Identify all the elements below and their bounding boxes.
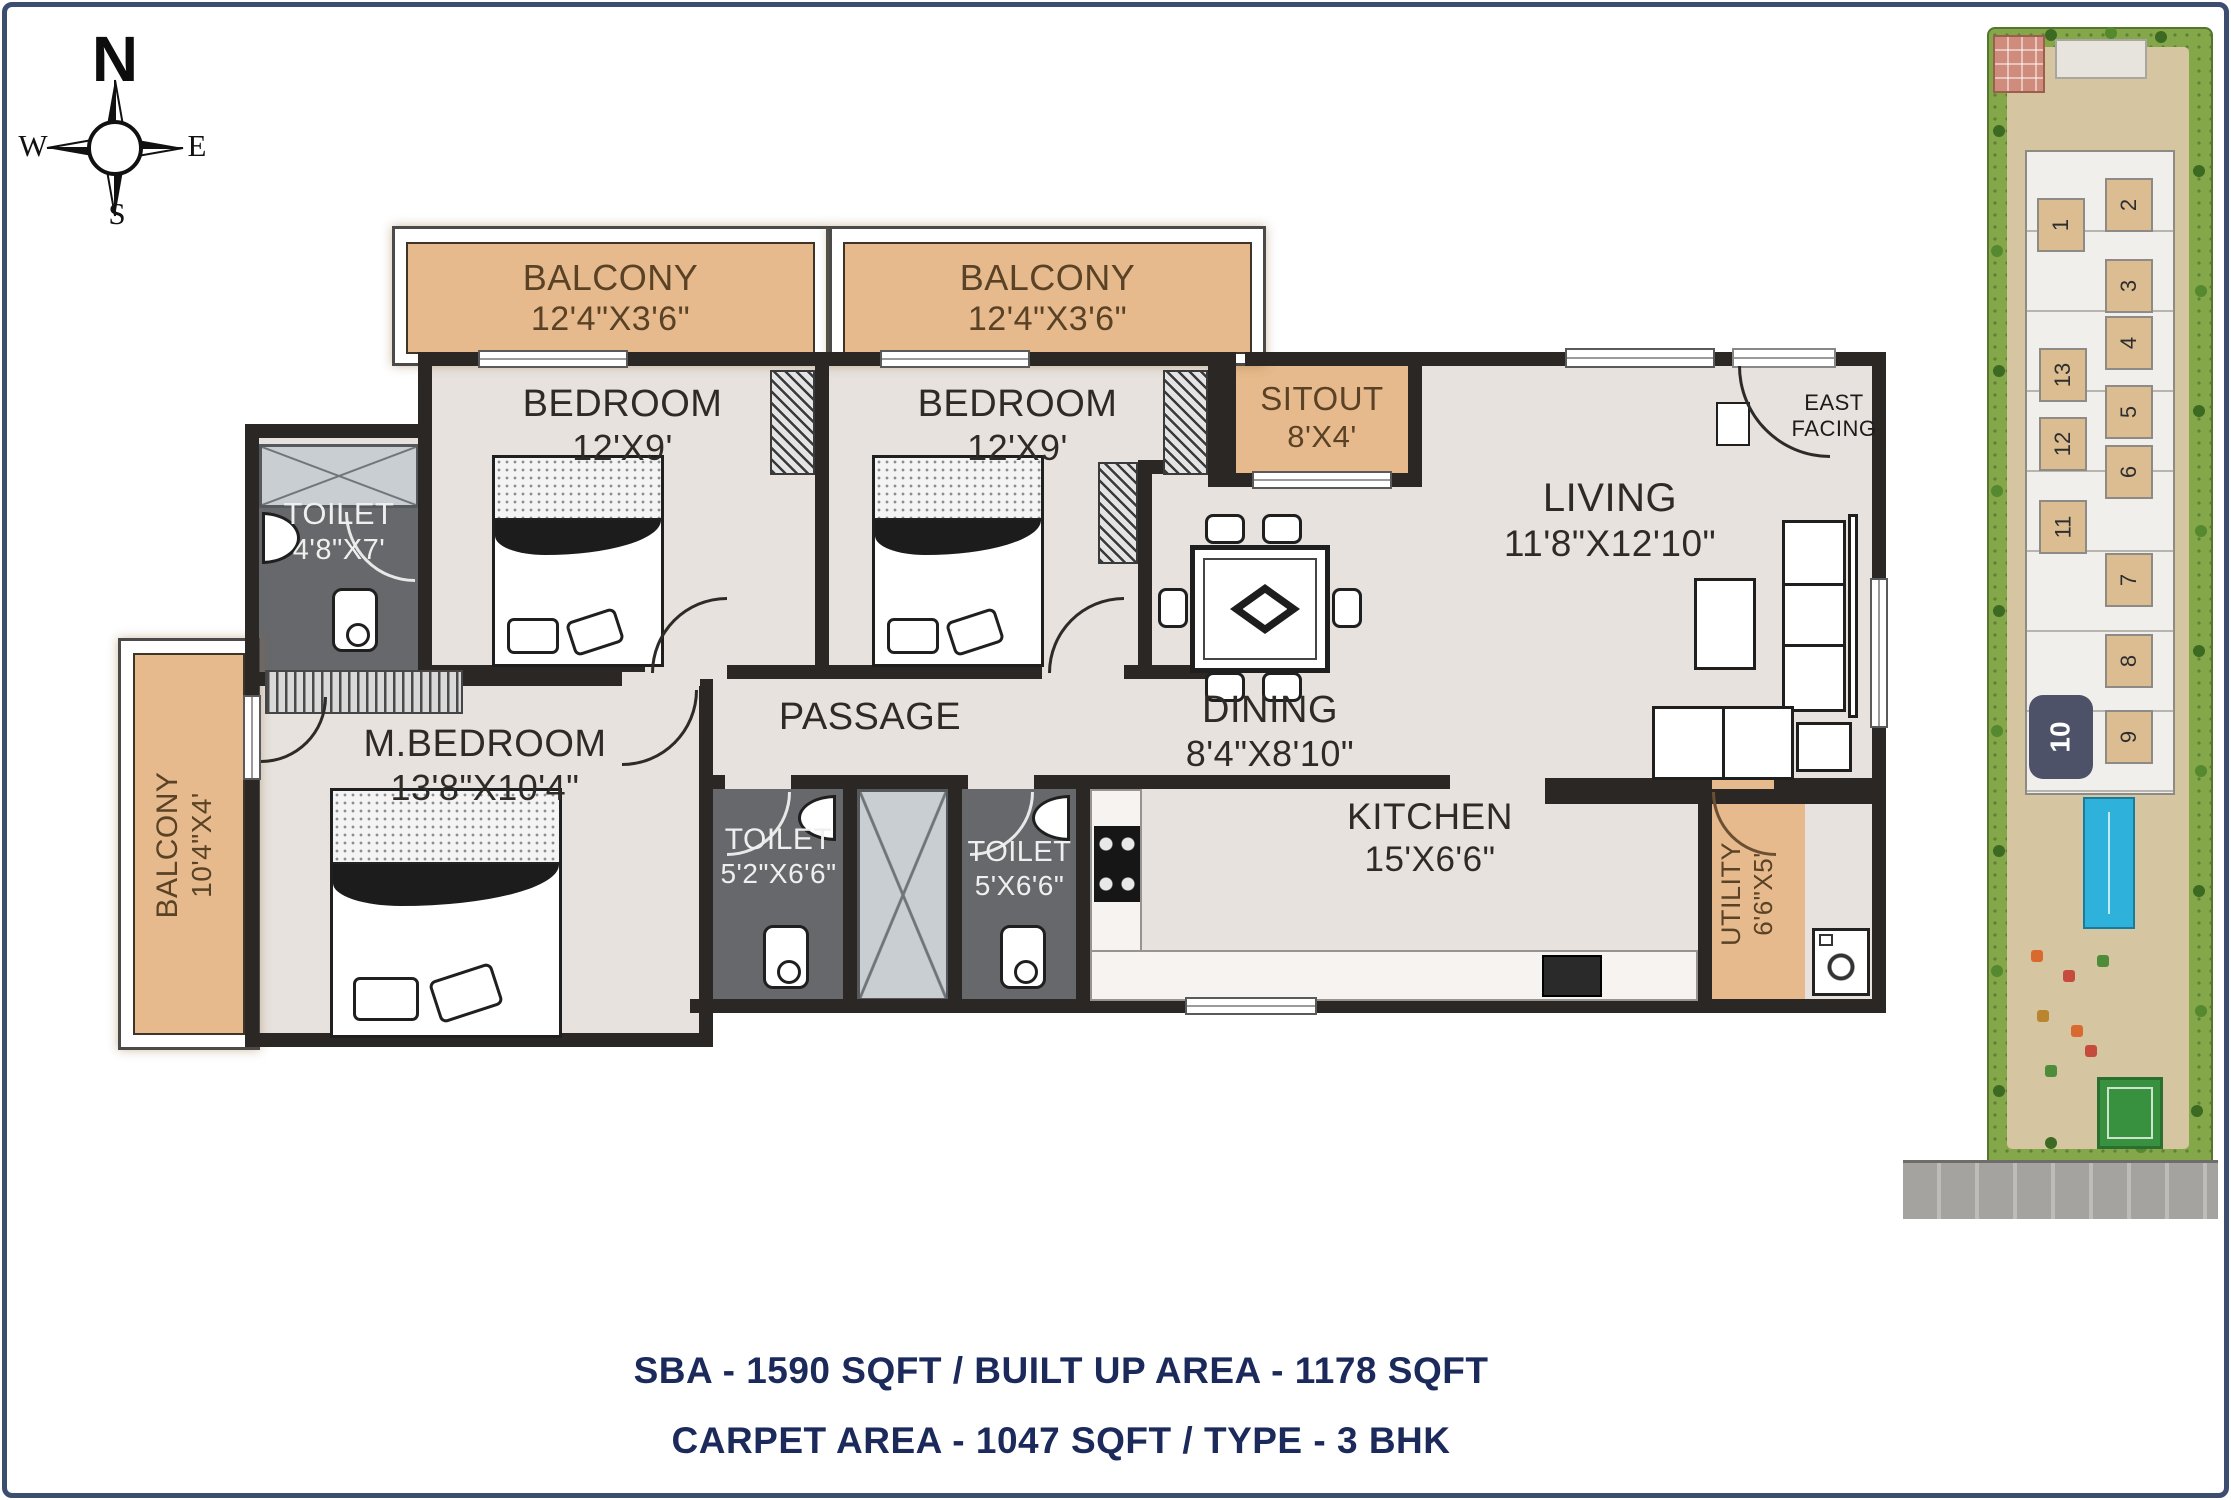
stove-icon [1094,826,1140,902]
bed-icon [492,455,664,667]
door-gap [725,775,791,789]
balcony-left-label: BALCONY [150,705,185,985]
wardrobe-icon [1098,462,1138,564]
master-bedroom-label: M.BEDROOM [290,722,680,767]
bedroom-2-label: BEDROOM [820,382,1215,427]
door-gap [622,672,700,686]
site-plan: 1 13 12 11 2 3 4 5 6 7 8 9 10 [1985,25,2217,1225]
master-bedroom-dims: 13'8"X10'4" [290,767,680,809]
toilet-1-dims: 4'8"X7' [259,533,419,567]
compass-south-label: S [92,196,142,232]
bedroom-1-label-group: BEDROOM 12'X9' [425,382,820,469]
window-icon [1185,997,1317,1015]
tv-unit-icon [1716,402,1750,446]
footer-area-line-1: SBA - 1590 SQFT / BUILT UP AREA - 1178 S… [336,1350,1786,1392]
utility-dims: 6'6"X5' [1748,784,1779,1004]
dining-label-group: DINING 8'4"X8'10" [1150,688,1390,775]
site-unit: 6 [2105,445,2153,499]
balcony-2-label: BALCONY [960,257,1136,299]
dining-dims: 8'4"X8'10" [1150,733,1390,775]
site-unit: 2 [2105,178,2153,232]
unit-number: 9 [2116,731,2142,743]
wall [1138,460,1152,679]
balcony-door-icon [243,695,261,780]
site-unit: 1 [2037,198,2085,252]
unit-number: 4 [2116,337,2142,349]
toilet-icon [332,588,378,652]
chair-icon [1262,514,1302,544]
wall [843,775,857,1013]
compass-west-label: W [8,128,58,164]
master-bedroom-label-group: M.BEDROOM 13'8"X10'4" [290,722,680,809]
kitchen-label-group: KITCHEN 15'X6'6" [1280,795,1580,880]
site-unit: 11 [2039,500,2087,554]
chair-icon [1158,588,1188,628]
entrance-opening [1732,348,1836,368]
site-unit: 5 [2105,385,2153,439]
entrance-facing-label: EAST FACING [1786,390,1882,443]
sofa-icon [1652,706,1794,780]
bedroom-2-label-group: BEDROOM 12'X9' [820,382,1215,469]
site-unit: 12 [2039,417,2087,471]
site-unit: 13 [2039,348,2087,402]
unit-number: 12 [2050,432,2076,456]
swimming-pool-icon [2083,797,2135,929]
toilet-2-label-group: TOILET 5'2"X6'6" [713,822,844,890]
utility-label-group: UTILITY 6'6"X5' [1716,784,1794,1004]
wall [1698,775,1712,1013]
kitchen-counter-bottom [1090,950,1698,1001]
site-unit: 9 [2105,710,2153,764]
sitout-label-group: SITOUT 8'X4' [1236,380,1408,456]
toilet-3-label: TOILET [962,835,1077,869]
sitout-label: SITOUT [1236,380,1408,419]
wall [1090,775,1450,789]
bedroom-1-dims: 12'X9' [425,427,820,469]
room-balcony-2: BALCONY 12'4"X3'6" [843,242,1252,354]
wall [245,424,432,438]
site-unit: 3 [2105,259,2153,313]
side-table-icon [1796,722,1852,772]
coffee-table-icon [1694,578,1756,670]
unit-number: 3 [2116,280,2142,292]
unit-number: 2 [2116,199,2142,211]
window-icon [1870,578,1888,728]
balcony-1-label: BALCONY [523,257,699,299]
sports-court-icon [2097,1077,2163,1149]
washing-machine-icon [1812,928,1870,996]
wall [699,672,713,1047]
balcony-1-dims: 12'4"X3'6" [523,299,699,339]
wall [1076,775,1090,1013]
toilet-icon [763,925,809,989]
window-icon [478,350,628,368]
toilet-2-dims: 5'2"X6'6" [713,857,844,890]
unit-number: 1 [2048,219,2074,231]
bed-icon [330,788,562,1038]
bedroom-1-label: BEDROOM [425,382,820,427]
highlighted-unit-10: 10 [2029,695,2093,779]
chair-icon [1205,514,1245,544]
door-gap [968,775,1034,789]
amenity-building-icon [2055,39,2147,79]
dining-table-icon [1190,545,1330,673]
toilet-3-dims: 5'X6'6" [962,869,1077,902]
shaft-2 [857,789,949,1001]
toilet-2-label: TOILET [713,822,844,857]
kitchen-sink-icon [1542,955,1602,997]
dining-label: DINING [1150,688,1390,733]
chair-icon [1332,588,1362,628]
sitout-slider-icon [1252,471,1392,489]
sofa-icon [1782,520,1846,712]
floor-plan-page: N W E S BALCONY 12'4"X3'6" BALCONY 12'4"… [0,0,2231,1500]
living-label: LIVING [1445,475,1775,522]
living-label-group: LIVING 11'8"X12'10" [1445,475,1775,566]
unit-number: 8 [2116,655,2142,667]
unit-number: 5 [2116,406,2142,418]
site-unit: 4 [2105,316,2153,370]
toilet-1-label-group: TOILET 4'8"X7' [259,496,419,567]
wall [1408,352,1422,487]
compass-north-label: N [60,22,170,96]
balcony-left-dims: 10'4"X4' [185,705,218,985]
utility-label: UTILITY [1716,784,1748,1004]
toilet-3-label-group: TOILET 5'X6'6" [962,835,1077,902]
clubhouse-icon [1993,35,2045,93]
site-unit: 8 [2105,634,2153,688]
kitchen-dims: 15'X6'6" [1280,839,1580,880]
compass-east-label: E [172,128,222,164]
bed-icon [872,455,1044,667]
balcony-left-label-group: BALCONY 10'4"X4' [150,705,240,985]
passage-label: PASSAGE [745,695,995,740]
sitout-dims: 8'X4' [1236,419,1408,456]
footer-area-line-2: CARPET AREA - 1047 SQFT / TYPE - 3 BHK [336,1420,1786,1462]
unit-number: 7 [2116,574,2142,586]
site-unit: 7 [2105,553,2153,607]
room-balcony-1: BALCONY 12'4"X3'6" [406,242,815,354]
sofa-back-icon [1848,514,1858,718]
toilet-1-label: TOILET [259,496,419,533]
kitchen-label: KITCHEN [1280,795,1580,839]
playground-icons [1985,25,1997,37]
toilet-icon [1000,925,1046,989]
wall [948,775,962,1013]
living-dims: 11'8"X12'10" [1445,522,1775,566]
balcony-2-dims: 12'4"X3'6" [960,299,1136,339]
unit-number: 11 [2050,516,2076,539]
road [1903,1160,2218,1219]
window-icon [1565,348,1715,368]
window-icon [880,350,1030,368]
unit-number: 10 [2045,721,2077,752]
unit-number: 6 [2116,466,2142,478]
bedroom-2-dims: 12'X9' [820,427,1215,469]
unit-number: 13 [2050,363,2076,387]
